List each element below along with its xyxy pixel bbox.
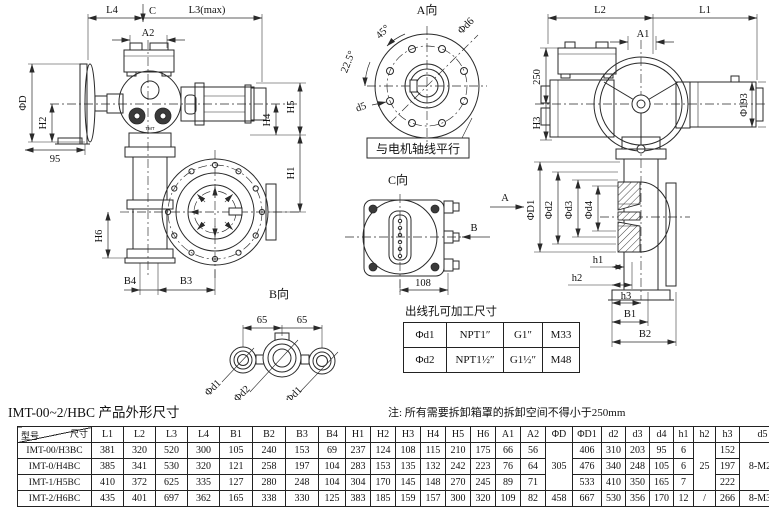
value-cell: 25 — [694, 443, 716, 491]
column-header: d4 — [650, 427, 674, 443]
dim-b1-label: B1 — [624, 309, 636, 320]
column-header: B3 — [286, 427, 319, 443]
view-a-title: A向 — [417, 2, 438, 17]
value-cell: 300 — [446, 491, 471, 507]
value-cell: 115 — [421, 443, 446, 459]
value-cell: 625 — [156, 475, 188, 491]
value-cell: 240 — [253, 443, 286, 459]
column-header: L3 — [156, 427, 188, 443]
view-arrow-b: B — [470, 223, 477, 234]
outlet-hole-table-title: 出线孔可加工尺寸 — [405, 303, 580, 319]
value-cell: 372 — [124, 475, 156, 491]
value-cell: 71 — [521, 475, 546, 491]
value-cell: 6 — [674, 459, 694, 475]
dim-h3-label: H3 — [532, 117, 543, 130]
main-table-body: IMT-00/H3BC38132052030010524015369237124… — [18, 443, 769, 507]
dim-b3-label: B3 — [180, 276, 192, 287]
dim-l3-label: L3(max) — [189, 5, 226, 16]
view-c: C向 108 A B — [345, 172, 524, 295]
dim-h1-small-label: h1 — [593, 255, 604, 266]
cable-glands — [444, 201, 459, 271]
value-cell: 185 — [371, 491, 396, 507]
column-header: H2 — [371, 427, 396, 443]
column-header: d3 — [626, 427, 650, 443]
dim-phid2-label: Φd2 — [544, 201, 555, 219]
value-cell: 401 — [124, 491, 156, 507]
value-cell: 330 — [286, 491, 319, 507]
dim-h2-label: H2 — [38, 117, 49, 130]
technical-drawing: TMT — [0, 0, 769, 400]
column-header: h1 — [674, 427, 694, 443]
dim-h6-label: H6 — [94, 230, 105, 243]
value-cell: 153 — [371, 459, 396, 475]
right-side-view: L2 L1 A1 250 H3 Φ193 ΦD1 Φd2 — [526, 5, 766, 347]
hole-cell: Φd2 — [404, 348, 447, 373]
dim-h2-small-label: h2 — [572, 273, 583, 284]
value-cell: 8-M20 — [740, 443, 769, 491]
dim-108-label: 108 — [415, 278, 431, 289]
drawing-title: IMT-00~2/HBC 产品外形尺寸 — [8, 401, 179, 421]
column-header: H6 — [471, 427, 496, 443]
value-cell: 170 — [371, 475, 396, 491]
value-cell: 697 — [156, 491, 188, 507]
dim-phid1-right-label: Φd1 — [284, 385, 305, 400]
value-cell: 533 — [573, 475, 602, 491]
column-header: H4 — [421, 427, 446, 443]
corner-dim-label: 尺寸 — [70, 427, 88, 440]
value-cell: 165 — [220, 491, 253, 507]
column-header: L2 — [124, 427, 156, 443]
column-header: H1 — [346, 427, 371, 443]
dim-phid4-label: Φd4 — [584, 200, 595, 219]
left-view-dimensions: C L4 L3(max) A2 ΦD H2 95 H4 H5 — [18, 4, 306, 295]
dim-b4-label: B4 — [124, 276, 137, 287]
value-cell: 341 — [124, 459, 156, 475]
value-cell: 64 — [521, 459, 546, 475]
value-cell: 56 — [521, 443, 546, 459]
column-header: d2 — [602, 427, 626, 443]
table-row: IMT-00/H3BC38132052030010524015369237124… — [18, 443, 769, 459]
value-cell: 121 — [220, 459, 253, 475]
dim-h4-label: H4 — [262, 113, 273, 127]
actuator-body: TMT — [119, 43, 266, 133]
main-table-header-row: 尺寸 型号 L1L2L3L4B1B2B3B4H1H2H3H4H5H6A1A2ΦD… — [18, 427, 769, 443]
value-cell: 145 — [396, 475, 421, 491]
value-cell: 170 — [650, 491, 674, 507]
value-cell: 237 — [346, 443, 371, 459]
value-cell: / — [694, 491, 716, 507]
dim-l4-label: L4 — [106, 5, 118, 16]
model-cell: IMT-0/H4BC — [18, 459, 92, 475]
value-cell: 383 — [346, 491, 371, 507]
value-cell: 530 — [156, 459, 188, 475]
view-b: B向 65 65 Φd1 Φd2 Φd1 — [203, 286, 338, 400]
value-cell: 125 — [319, 491, 346, 507]
dim-phid6-label: Φd6 — [456, 16, 477, 37]
value-cell: 283 — [346, 459, 371, 475]
value-cell: 153 — [286, 443, 319, 459]
dim-phid1-label: ΦD1 — [526, 200, 537, 221]
value-cell: 385 — [92, 459, 124, 475]
model-cell: IMT-2/H6BC — [18, 491, 92, 507]
column-header: H5 — [446, 427, 471, 443]
hole-cell: G1″ — [504, 323, 543, 348]
dim-225deg-label: 22.5° — [339, 50, 358, 75]
column-header: L1 — [92, 427, 124, 443]
value-cell: 95 — [650, 443, 674, 459]
value-cell: 248 — [286, 475, 319, 491]
dim-65-right-label: 65 — [297, 315, 308, 326]
column-header: A1 — [496, 427, 521, 443]
value-cell: 356 — [626, 491, 650, 507]
value-cell: 320 — [124, 443, 156, 459]
right-view-dimensions: L2 L1 A1 250 H3 Φ193 ΦD1 Φd2 — [526, 5, 766, 347]
table-row: IMT-2/H6BC435401697362165338330125383185… — [18, 491, 769, 507]
value-cell: 350 — [626, 475, 650, 491]
model-cell: IMT-00/H3BC — [18, 443, 92, 459]
handwheel-front — [594, 57, 688, 153]
column-header: B2 — [253, 427, 286, 443]
drawing-note: 注: 所有需要拆卸箱罩的拆卸空间不得小于250mm — [388, 404, 625, 420]
value-cell: 458 — [546, 491, 573, 507]
table-row: Φd1 NPT1″ G1″ M33 — [404, 323, 580, 348]
value-cell: 310 — [602, 443, 626, 459]
dim-95-label: 95 — [50, 154, 61, 165]
engineering-drawing-page: { "ink": "#1a1a1a", "drawing": { "left_v… — [0, 0, 769, 524]
view-b-title: B向 — [269, 286, 289, 301]
value-cell: 7 — [674, 475, 694, 491]
hole-cell: M33 — [543, 323, 580, 348]
table-row: IMT-0/H4BC385341530320121258197104283153… — [18, 459, 769, 475]
brand-logo: TMT — [145, 126, 154, 131]
valve-column — [125, 133, 175, 263]
dimension-table: 尺寸 型号 L1L2L3L4B1B2B3B4H1H2H3H4H5H6A1A2ΦD… — [17, 426, 769, 507]
hole-cell: M48 — [543, 348, 580, 373]
value-cell: 12 — [674, 491, 694, 507]
value-cell: 410 — [92, 475, 124, 491]
dim-phid1-left-label: Φd1 — [203, 378, 224, 399]
value-cell: 66 — [496, 443, 521, 459]
left-side-view: TMT — [18, 4, 306, 295]
value-cell: 76 — [496, 459, 521, 475]
value-cell: 300 — [188, 443, 220, 459]
column-header: d5 — [740, 427, 769, 443]
dim-65-left-label: 65 — [257, 315, 268, 326]
value-cell: 148 — [421, 475, 446, 491]
dim-phid3-label: Φd3 — [564, 201, 575, 219]
dim-d5-label: d5 — [354, 101, 368, 115]
value-cell: 335 — [188, 475, 220, 491]
dim-a1-label: A1 — [637, 29, 650, 40]
dim-phi193-label: Φ193 — [739, 93, 750, 116]
dim-45deg-label: 45° — [374, 23, 392, 41]
view-arrow-a: A — [501, 193, 509, 204]
column-header: H3 — [396, 427, 421, 443]
value-cell: 242 — [446, 459, 471, 475]
stem-column-section — [608, 137, 676, 300]
keyway — [410, 80, 417, 92]
motor-axis-note: 与电机轴线平行 — [376, 141, 460, 156]
model-cell: IMT-1/H5BC — [18, 475, 92, 491]
value-cell: 165 — [650, 475, 674, 491]
column-header: ΦD — [546, 427, 573, 443]
dim-phid2-b-label: Φd2 — [232, 384, 253, 400]
gland-bosses — [230, 333, 335, 377]
value-cell: 667 — [573, 491, 602, 507]
hole-cell: NPT1½″ — [447, 348, 504, 373]
value-cell: 223 — [471, 459, 496, 475]
value-cell: 175 — [471, 443, 496, 459]
column-header: h2 — [694, 427, 716, 443]
hole-cell: NPT1″ — [447, 323, 504, 348]
dim-l1-label: L1 — [699, 5, 711, 16]
dim-h5-label: H5 — [286, 101, 297, 114]
value-cell: 381 — [92, 443, 124, 459]
column-header: B1 — [220, 427, 253, 443]
column-header: L4 — [188, 427, 220, 443]
column-header: B4 — [319, 427, 346, 443]
value-cell: 270 — [446, 475, 471, 491]
value-cell: 108 — [396, 443, 421, 459]
dim-a2-label: A2 — [142, 28, 155, 39]
table-row: IMT-1/H5BC410372625335127280248104304170… — [18, 475, 769, 491]
value-cell: 410 — [602, 475, 626, 491]
value-cell: 69 — [319, 443, 346, 459]
value-cell: 157 — [421, 491, 446, 507]
column-header: h3 — [716, 427, 740, 443]
corner-model-label: 型号 — [21, 429, 39, 442]
value-cell: 8-M30 — [740, 491, 769, 507]
value-cell: 135 — [396, 459, 421, 475]
dim-h3-small-label: h3 — [621, 291, 632, 302]
value-cell: 320 — [471, 491, 496, 507]
value-cell: 305 — [546, 443, 573, 491]
value-cell: 105 — [220, 443, 253, 459]
dim-c-label: C — [149, 6, 156, 17]
value-cell: 248 — [626, 459, 650, 475]
view-a: A向 45° 22.5° Φd6 d5 与电机轴线平行 — [339, 2, 487, 158]
value-cell: 132 — [421, 459, 446, 475]
value-cell: 530 — [602, 491, 626, 507]
value-cell: 520 — [156, 443, 188, 459]
dim-b2-label: B2 — [639, 329, 651, 340]
terminal-box — [558, 42, 616, 78]
hole-cell: G1½″ — [504, 348, 543, 373]
value-cell: 89 — [496, 475, 521, 491]
value-cell: 6 — [674, 443, 694, 459]
value-cell: 476 — [573, 459, 602, 475]
value-cell: 104 — [319, 475, 346, 491]
value-cell: 159 — [396, 491, 421, 507]
value-cell: 105 — [650, 459, 674, 475]
value-cell: 124 — [371, 443, 396, 459]
value-cell: 340 — [602, 459, 626, 475]
value-cell: 152 — [716, 443, 740, 459]
view-c-title: C向 — [388, 172, 408, 187]
value-cell: 127 — [220, 475, 253, 491]
outlet-hole-table: 出线孔可加工尺寸 Φd1 NPT1″ G1″ M33 Φd2 NPT1½″ G1… — [403, 303, 580, 373]
value-cell: 338 — [253, 491, 286, 507]
value-cell: 82 — [521, 491, 546, 507]
value-cell: 210 — [446, 443, 471, 459]
hole-cell: Φd1 — [404, 323, 447, 348]
value-cell: 304 — [346, 475, 371, 491]
table-row: Φd2 NPT1½″ G1½″ M48 — [404, 348, 580, 373]
value-cell: 258 — [253, 459, 286, 475]
dim-l2-label: L2 — [594, 5, 606, 16]
value-cell: 222 — [716, 475, 740, 491]
dim-phid-label: ΦD — [18, 95, 29, 111]
value-cell: 406 — [573, 443, 602, 459]
corner-cell: 尺寸 型号 — [18, 427, 92, 443]
dim-h1-label: H1 — [286, 167, 297, 180]
column-header: A2 — [521, 427, 546, 443]
value-cell: 197 — [286, 459, 319, 475]
value-cell: 362 — [188, 491, 220, 507]
value-cell: 104 — [319, 459, 346, 475]
value-cell: 280 — [253, 475, 286, 491]
dim-250-label: 250 — [532, 69, 543, 85]
value-cell: 245 — [471, 475, 496, 491]
value-cell: 435 — [92, 491, 124, 507]
value-cell: 320 — [188, 459, 220, 475]
value-cell: 266 — [716, 491, 740, 507]
column-header: ΦD1 — [573, 427, 602, 443]
value-cell: 197 — [716, 459, 740, 475]
value-cell: 203 — [626, 443, 650, 459]
value-cell: 109 — [496, 491, 521, 507]
